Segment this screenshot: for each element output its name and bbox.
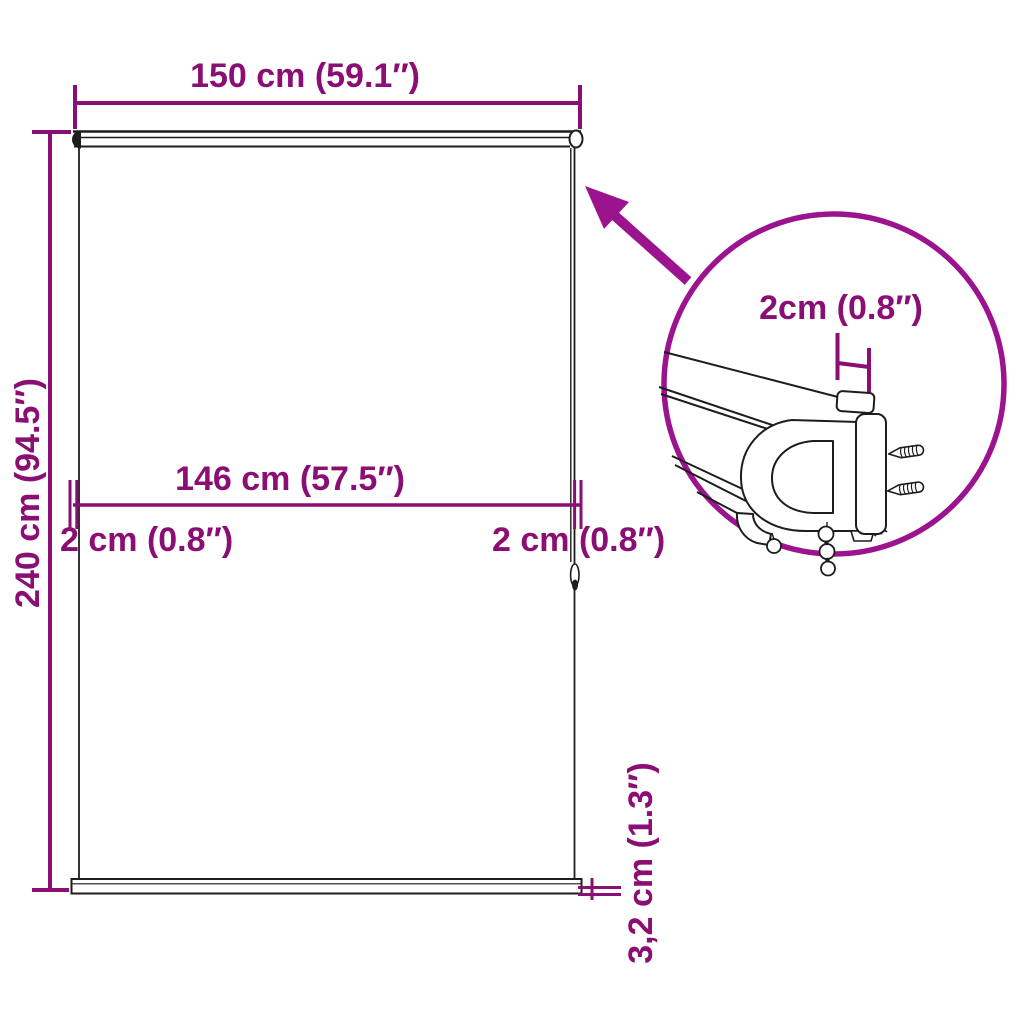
roller-blind-drawing xyxy=(72,131,583,894)
bead xyxy=(767,539,781,553)
mounting-bracket-tab xyxy=(836,391,874,414)
bead xyxy=(819,527,834,542)
mounting-bracket-plate xyxy=(856,414,886,534)
bead xyxy=(821,562,835,576)
bottom-bar-height-label: 3,2 cm (1.3″) xyxy=(621,733,661,993)
diagram-linework xyxy=(0,0,1024,1024)
pull-chain-hook-tip xyxy=(572,580,578,591)
bead-link xyxy=(825,558,829,562)
side-gap-right-label: 2 cm (0.8″) xyxy=(492,522,665,559)
top-bar-right-cap xyxy=(570,131,583,148)
top-bar-left-cap xyxy=(72,131,81,149)
fabric-width-label: 146 cm (57.5″) xyxy=(39,461,541,498)
total-width-label: 150 cm (59.1″) xyxy=(54,58,556,95)
bead xyxy=(820,544,835,559)
side-gap-left-label: 2 cm (0.8″) xyxy=(60,522,233,559)
bottom-rail xyxy=(72,879,582,894)
bracket-width-label: 2cm (0.8″) xyxy=(741,290,941,327)
bead-link xyxy=(824,541,828,545)
callout-arrow-shaft xyxy=(614,215,688,281)
bottom-bar-dimension xyxy=(578,878,621,900)
callout-arrow xyxy=(585,186,688,281)
product-dimension-diagram: 150 cm (59.1″) 240 cm (94.5″) 146 cm (57… xyxy=(0,0,1024,1024)
